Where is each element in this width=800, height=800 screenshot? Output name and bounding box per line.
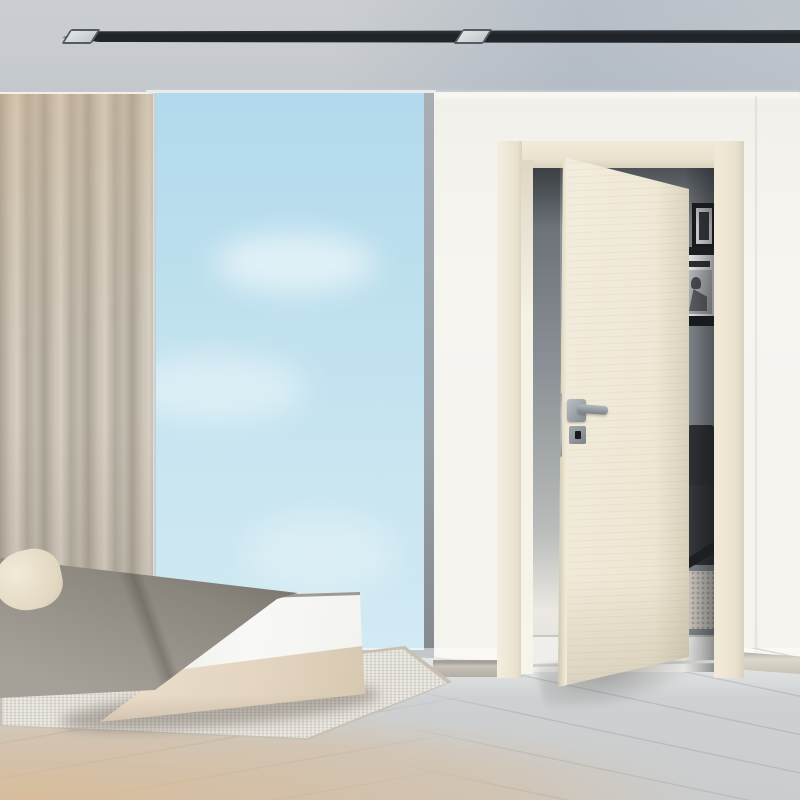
wall-corner-line	[755, 96, 758, 668]
window-sky	[155, 93, 425, 650]
door-leaf-shading	[553, 150, 693, 695]
hallway-wall-sliver	[533, 167, 560, 672]
door-frame-left-jamb	[497, 141, 522, 678]
cloud	[245, 513, 395, 593]
keyhole-icon	[575, 431, 581, 439]
baseboard	[433, 660, 497, 677]
window-frame-right	[424, 93, 434, 668]
ceiling-shading	[0, 0, 800, 96]
ceiling-track-light	[62, 30, 800, 43]
cloud	[215, 233, 375, 293]
bedroom-photo	[0, 0, 800, 800]
door-frame-header	[497, 141, 744, 168]
door-frame-right-jamb	[714, 141, 744, 678]
door-frame-left-reveal	[521, 160, 533, 674]
door-leaf	[553, 150, 693, 695]
